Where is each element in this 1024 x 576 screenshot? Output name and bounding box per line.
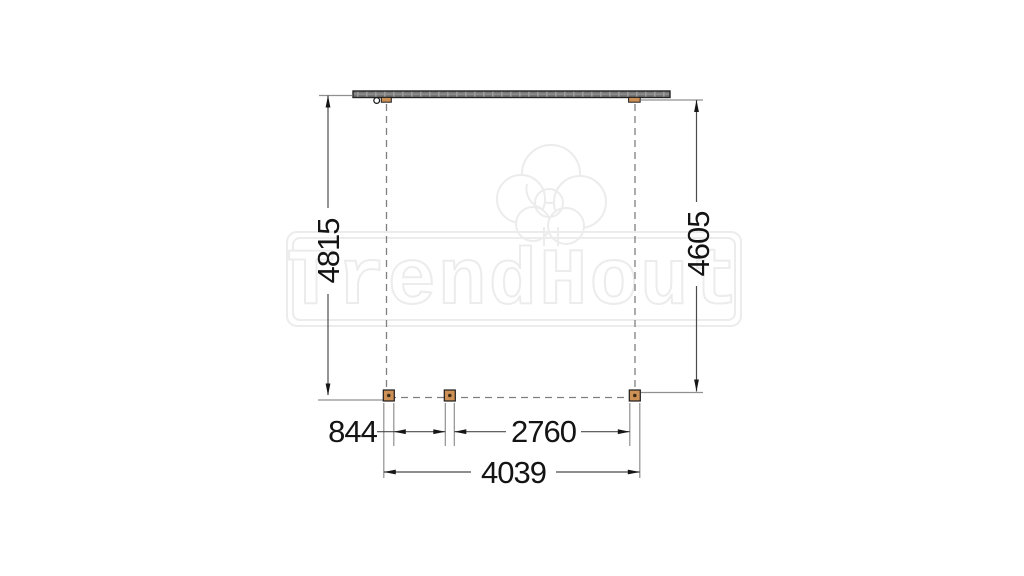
post-left <box>383 390 394 401</box>
wall-bracket-right <box>629 97 641 102</box>
posts <box>383 390 640 401</box>
plan-drawing: TrendHout <box>0 0 1024 576</box>
post-anchor-dot <box>633 394 637 398</box>
dimension-label-width-total: 4039 <box>481 455 546 490</box>
post-middle <box>444 390 455 401</box>
post-anchor-dot <box>387 394 391 398</box>
watermark: TrendHout <box>287 145 742 328</box>
tree-cloud-icon <box>497 145 606 244</box>
drawing-canvas: TrendHout <box>0 0 1024 576</box>
post-right <box>629 390 640 401</box>
dimension-label-depth-total: 4815 <box>311 219 346 284</box>
dimension-label-span-left: 844 <box>328 414 377 449</box>
dimension-label-depth-posts: 4605 <box>681 212 716 277</box>
dimension-label-span-middle: 2760 <box>511 414 577 449</box>
watermark-brand-text: TrendHout <box>287 237 742 328</box>
drain-circle <box>374 98 380 104</box>
post-anchor-dot <box>448 394 452 398</box>
wall-bracket-left <box>381 97 391 102</box>
roof-beam <box>353 91 670 98</box>
